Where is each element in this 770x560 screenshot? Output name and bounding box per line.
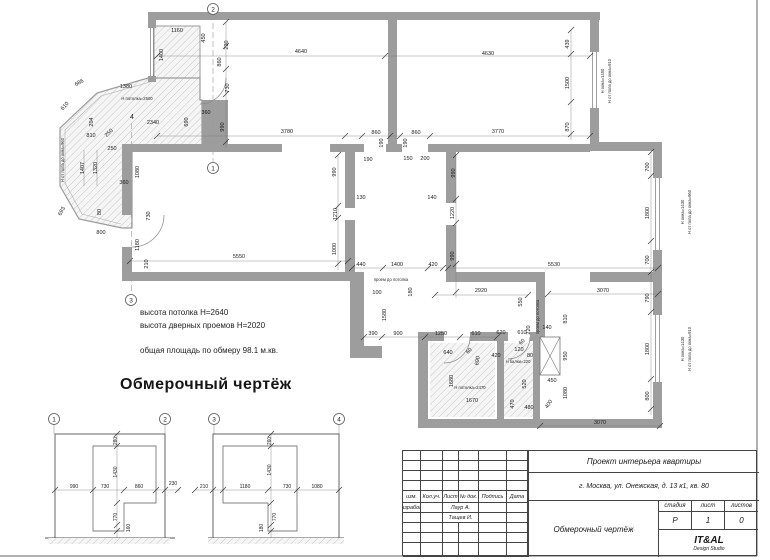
titleblock-cell <box>507 451 528 461</box>
dim-text: проем до потолка <box>535 299 540 334</box>
titleblock-cell <box>443 543 459 557</box>
dim-text: 4640 <box>295 49 307 55</box>
titleblock-cell <box>479 513 507 523</box>
dim-text: 180 <box>408 287 414 296</box>
dim-text: 860 <box>135 484 144 490</box>
titleblock-cell <box>421 543 443 557</box>
titleblock-cell: Лаур А. <box>443 503 479 513</box>
dim-text: 1400 <box>391 262 403 268</box>
dim-text: 990 <box>450 251 456 260</box>
titleblock-cell <box>479 471 507 481</box>
titleblock-cell <box>421 451 443 461</box>
dim-text: 470 <box>510 399 516 408</box>
dim-text: Н потолка=2470 <box>454 385 486 390</box>
titleblock-cell <box>443 523 459 533</box>
titleblock-cell <box>403 481 421 491</box>
dim-text: 686 <box>74 78 85 88</box>
note-door-height: высота дверных проемов Н=2020 <box>140 319 278 332</box>
axis-marker-number: 1 <box>52 416 56 423</box>
dim-text: 190 <box>379 138 385 147</box>
dim-text: 730 <box>101 484 110 490</box>
dim-text: 620 <box>496 330 505 336</box>
titleblock-cell <box>479 523 507 533</box>
titleblock-cell <box>459 461 479 471</box>
titleblock-cell: Разработ. <box>403 503 421 513</box>
titleblock-cell <box>507 543 528 557</box>
titleblock-cell <box>443 533 459 543</box>
dim-text: 1800 <box>645 343 651 355</box>
sheet-value: 1 <box>692 512 725 530</box>
dim-text: 180 <box>259 524 265 533</box>
titleblock-cell <box>479 451 507 461</box>
dim-text: 3770 <box>492 129 504 135</box>
dim-text: 730 <box>283 484 292 490</box>
titleblock-cell <box>479 503 507 513</box>
dim-text: 1430 <box>267 464 273 475</box>
titleblock-cell <box>421 481 443 491</box>
dim-text: Н от пола до окна=960 <box>60 137 65 182</box>
titleblock-right: Проект интерьера квартиры г. Москва, ул.… <box>528 451 758 557</box>
dim-text: 130 <box>356 195 365 201</box>
titleblock-cell <box>403 471 421 481</box>
dim-text: Н от пола до окна=960 <box>687 189 692 234</box>
dim-text: 860 <box>411 130 420 136</box>
studio-subtitle: Design Studio <box>693 546 724 552</box>
dim-text: 439 <box>565 39 571 48</box>
dim-text: 5530 <box>548 262 560 268</box>
dim-text: 120 <box>514 347 523 353</box>
titleblock-cell: Лист <box>443 491 459 503</box>
dim-text: 4630 <box>482 51 494 57</box>
titleblock-cell <box>421 533 443 543</box>
dim-text: Н от пола до окна=910 <box>687 326 692 371</box>
dim-text: 230 <box>169 481 178 487</box>
dim-text: 3070 <box>597 288 609 294</box>
dim-text: 1000 <box>332 243 338 255</box>
dim-text: 2920 <box>475 288 487 294</box>
titleblock-cell <box>459 533 479 543</box>
titleblock-cell <box>507 513 528 523</box>
dim-text: Н балки=220 <box>506 359 532 364</box>
dim-text: 440 <box>356 262 365 268</box>
dim-text: 730 <box>146 211 152 220</box>
dim-text: 260 <box>267 437 273 446</box>
titleblock-cell <box>507 523 528 533</box>
dim-text: 150 <box>403 156 412 162</box>
dim-text: 900 <box>393 331 402 337</box>
dim-text: 1380 <box>120 84 132 90</box>
titleblock-cell <box>403 533 421 543</box>
dim-text: 640 <box>443 350 452 356</box>
dim-text: 210 <box>200 484 209 490</box>
dim-text: 990 <box>451 168 457 177</box>
dim-text: 190 <box>363 157 372 163</box>
dim-text: 360 <box>119 180 128 186</box>
dim-text: 990 <box>70 484 79 490</box>
titleblock-cell: Подпись <box>479 491 507 503</box>
titleblock-cell <box>479 543 507 557</box>
project-address: г. Москва, ул. Онежская, д. 13 к1, кв. 8… <box>529 473 759 501</box>
titleblock-cell <box>421 471 443 481</box>
titleblock-cell <box>459 543 479 557</box>
note-total-area: общая площадь по обмеру 98.1 м.кв. <box>140 344 278 357</box>
drawing-sheet: 1160450230140086073013806866102042340690… <box>0 0 770 560</box>
titleblock-cell <box>443 471 459 481</box>
dim-text: 480 <box>524 405 533 411</box>
dim-text: 810 <box>563 314 569 323</box>
dim-text: Н окна=1430 <box>680 199 685 224</box>
dim-text: 610 <box>517 330 526 336</box>
sheets-value: 0 <box>725 512 758 530</box>
dim-text: 610 <box>60 101 71 112</box>
titleblock-cell <box>443 451 459 461</box>
title-block: изм.Кол.уч.Лист№ док.ПодписьДатаРазработ… <box>402 450 757 556</box>
dim-text: 2340 <box>147 120 159 126</box>
dim-text: 520 <box>522 379 528 388</box>
dim-text: 610 <box>471 331 480 337</box>
titleblock-cell <box>459 481 479 491</box>
sheet-label: лист <box>692 501 725 512</box>
axis-marker-number: 2 <box>211 6 215 13</box>
titleblock-cell <box>459 471 479 481</box>
dim-text: 1400 <box>159 49 165 61</box>
titleblock-cell <box>403 451 421 461</box>
titleblock-cell: № док. <box>459 491 479 503</box>
titleblock-cell <box>507 533 528 543</box>
dim-text: 860 <box>371 130 380 136</box>
dim-text: 1080 <box>311 484 322 490</box>
dim-text: 210 <box>144 259 150 268</box>
drawing-title: Обмерочный чертёж <box>120 376 292 394</box>
titleblock-cell <box>479 461 507 471</box>
dim-text: проем до потолка <box>374 277 409 282</box>
dim-text: Н окна=1450 <box>600 68 605 93</box>
dim-text: 990 <box>332 167 338 176</box>
dim-text: 950 <box>563 351 569 360</box>
dim-text: 693 <box>57 206 67 217</box>
titleblock-cell <box>421 513 443 523</box>
dim-text: 1210 <box>333 208 339 220</box>
dim-text: 1180 <box>135 239 141 251</box>
titleblock-cell: Тащев И. <box>443 513 479 523</box>
project-name: Проект интерьера квартиры <box>529 451 759 473</box>
vent-shaft <box>540 337 560 375</box>
dim-text: 870 <box>565 122 571 131</box>
titleblock-cell <box>507 471 528 481</box>
dim-text: 1800 <box>645 207 651 219</box>
dim-text: 730 <box>225 83 231 92</box>
dim-text: 3780 <box>281 129 293 135</box>
dim-text: 230 <box>224 40 230 49</box>
titleblock-cell <box>403 523 421 533</box>
dim-text: 1220 <box>450 207 456 219</box>
dim-text: 770 <box>272 513 278 522</box>
dim-text: 220 <box>526 325 532 334</box>
titleblock-cell: Кол.уч. <box>421 491 443 503</box>
walls <box>122 12 662 428</box>
dim-text: 450 <box>201 33 207 42</box>
dim-text: 400 <box>544 399 554 410</box>
titleblock-left-table: изм.Кол.уч.Лист№ док.ПодписьДатаРазработ… <box>403 451 528 557</box>
titleblock-cell <box>507 461 528 471</box>
studio-logo: IT&AL Design Studio <box>659 530 759 557</box>
titleblock-cell <box>479 533 507 543</box>
dim-text: 1320 <box>93 162 99 174</box>
dim-text: 204 <box>89 117 95 126</box>
dim-text: 800 <box>96 230 105 236</box>
dim-text: 1250 <box>435 331 447 337</box>
dim-text: 1580 <box>382 309 388 321</box>
titleblock-cell <box>459 523 479 533</box>
dim-text: 1080 <box>135 166 141 178</box>
dim-text: 1430 <box>113 466 119 477</box>
dim-text: 420 <box>428 262 437 268</box>
drawing-name-cell: Обмерочный чертёж <box>529 501 659 557</box>
dim-text: 280 <box>113 437 119 446</box>
dim-text: 390 <box>368 331 377 337</box>
dim-text: 810 <box>86 133 95 139</box>
titleblock-cell <box>443 461 459 471</box>
note-ceiling-height: высота потолка Н=2640 <box>140 306 278 319</box>
titleblock-cell <box>459 451 479 461</box>
titleblock-cell: Дата <box>507 491 528 503</box>
dim-text: 160 <box>126 524 132 533</box>
dim-text: 990 <box>220 122 226 131</box>
dim-text: 770 <box>113 513 119 522</box>
titleblock-cell <box>403 543 421 557</box>
dim-text: 250 <box>107 146 116 152</box>
titleblock-cell <box>421 503 443 513</box>
dim-text: 790 <box>645 293 651 302</box>
dim-text: 1160 <box>171 28 183 34</box>
dim-text: 450 <box>547 378 556 384</box>
dim-text: Н от пола до окна=910 <box>607 58 612 103</box>
axis-marker-number: 3 <box>129 297 133 304</box>
dim-text: 1670 <box>466 398 478 404</box>
titleblock-cell <box>403 513 421 523</box>
axis-marker-number: 4 <box>337 416 341 423</box>
dim-text: Н потолка=2500 <box>121 96 153 101</box>
axis-marker-number: 1 <box>211 165 215 172</box>
dim-text: 550 <box>518 297 524 306</box>
dim-text: 700 <box>645 255 651 264</box>
axis-marker-number: 3 <box>212 416 216 423</box>
plan-notes: высота потолка Н=2640 высота дверных про… <box>140 306 278 357</box>
dim-text: 190 <box>403 138 409 147</box>
dim-text: 800 <box>645 391 651 400</box>
dim-text: 140 <box>427 195 436 201</box>
dim-text: 1180 <box>240 484 251 490</box>
dim-text: 1080 <box>563 387 569 399</box>
stage-value: Р <box>659 512 692 530</box>
dim-text: 700 <box>645 162 651 171</box>
titleblock-cell <box>421 523 443 533</box>
stage-label: стадия <box>659 501 692 512</box>
dim-text: 140 <box>542 325 551 331</box>
dim-text: 4 <box>130 114 134 121</box>
dim-text: 80 <box>97 209 103 215</box>
sheets-label: листов <box>725 501 758 512</box>
dim-text: 3070 <box>594 420 606 426</box>
titleblock-cell: изм. <box>403 491 421 503</box>
titleblock-cell <box>421 461 443 471</box>
dim-text: 200 <box>420 156 429 162</box>
studio-name: IT&AL <box>694 535 723 546</box>
dim-text: 420 <box>491 353 500 359</box>
dim-text: 1500 <box>565 77 571 89</box>
dim-text: 5550 <box>233 254 245 260</box>
axis-marker-number: 2 <box>163 416 167 423</box>
dim-text: Н окна=1430 <box>680 336 685 361</box>
ground-hatch <box>208 538 344 544</box>
titleblock-cell <box>507 503 528 513</box>
bathroom-hatch <box>430 343 495 417</box>
titleblock-cell <box>443 481 459 491</box>
titleblock-cell <box>403 461 421 471</box>
titleblock-cell <box>479 481 507 491</box>
dim-text: 360 <box>201 110 210 116</box>
dim-text: 100 <box>372 290 381 296</box>
ground-hatch <box>48 538 170 544</box>
dim-text: 1407 <box>80 162 86 174</box>
titleblock-cell <box>507 481 528 491</box>
dim-text: 690 <box>184 117 190 126</box>
dim-text: 860 <box>217 57 223 66</box>
